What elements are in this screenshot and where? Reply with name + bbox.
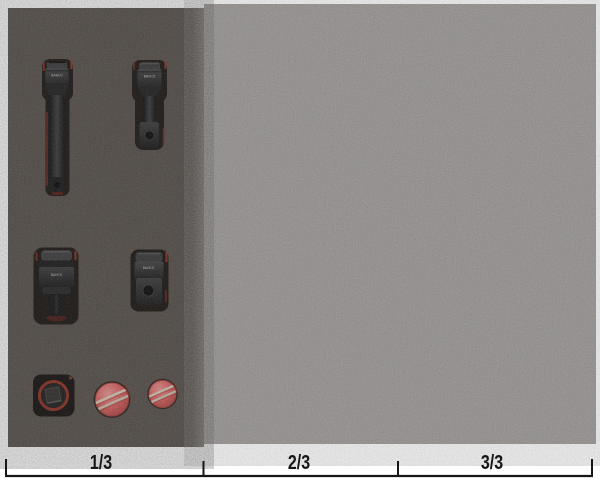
foam-tool-tray-photo: BAHCO BAHCO BAHCO [0, 0, 600, 483]
tray-graphic: BAHCO BAHCO BAHCO [0, 0, 600, 483]
ruler-label-1of3: 1/3 [73, 452, 129, 474]
foam-grain-texture [8, 4, 596, 447]
ruler-label-3of3: 3/3 [464, 452, 520, 474]
ruler-label-2of3: 2/3 [271, 452, 327, 474]
